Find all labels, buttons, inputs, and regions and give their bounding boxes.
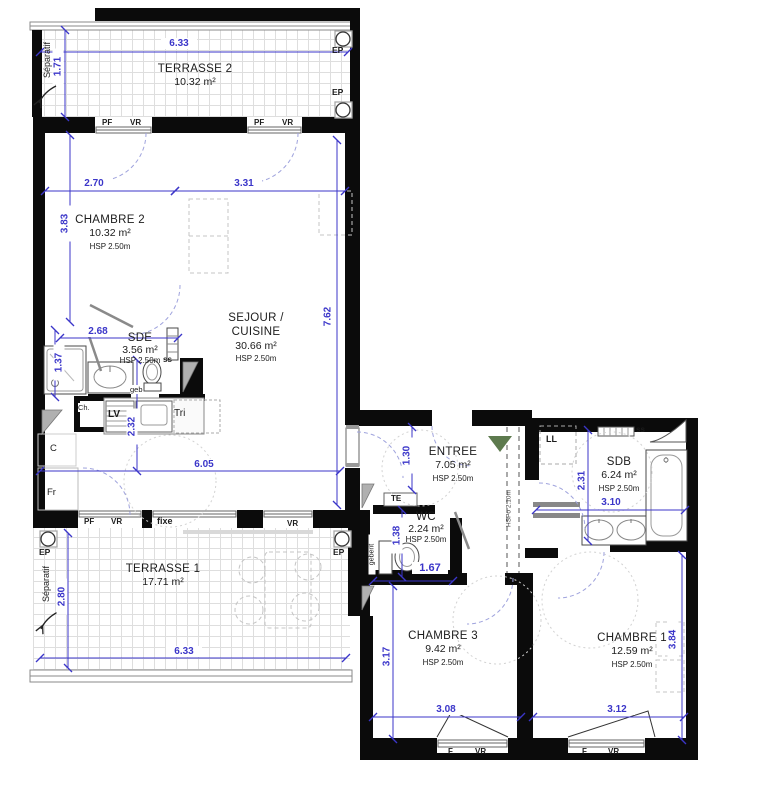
room-area: 10.32 m² (115, 76, 275, 89)
radiator-label-ss: ss (163, 355, 172, 364)
appliance-label-lv: LV (108, 409, 120, 420)
room-hsp: HSP 2.50m (48, 242, 172, 252)
room-area: 9.42 m² (382, 643, 504, 656)
room-name: CHAMBRE 3 (382, 629, 504, 643)
dim-shower-depth: 1.37 (54, 345, 65, 381)
room-name: TERRASSE 2 (115, 62, 275, 76)
room-name: ENTREE (411, 445, 495, 459)
room-hsp: HSP 2.50m (571, 660, 693, 670)
ceiling-height-label-hspo: HSPo 2.10m (506, 486, 513, 532)
dim-sdb-width: 3.10 (593, 497, 629, 508)
room-name: CUISINE (196, 325, 316, 339)
window-label-vr: VR (282, 118, 293, 127)
room-area: 17.71 m² (93, 576, 233, 589)
fridge-label-fr: Fr (47, 487, 56, 498)
room-name: TERRASSE 1 (93, 562, 233, 576)
dim-sde-width: 2.68 (80, 326, 116, 337)
ep-label: EP (333, 547, 344, 557)
dim-terrasse2-depth: 1.71 (53, 49, 64, 85)
window-label-vr: VR (111, 517, 122, 526)
room-label-sdb: SDB 6.24 m² HSP 2.50m (577, 455, 661, 494)
dim-wc-depth: 1.38 (392, 518, 403, 554)
floorplan-geometry (0, 0, 773, 800)
dim-entree-depth: 1.30 (402, 438, 413, 474)
dim-chambre2-depth: 3.83 (60, 206, 71, 242)
radiator-label-ss: ss (636, 425, 645, 434)
room-label-chambre3: CHAMBRE 3 9.42 m² HSP 2.50m (382, 629, 504, 668)
dim-terrasse1-width: 6.33 (166, 646, 202, 657)
bin-label-tri: Tri (174, 408, 185, 419)
closet-label-c: C (50, 443, 57, 454)
dim-sejour-width: 3.31 (226, 178, 262, 189)
dim-terrasse1-depth: 2.80 (57, 579, 68, 615)
window-label-fixe: fixe (157, 516, 173, 526)
window-label-vr: VR (475, 747, 486, 756)
floor-plan: TERRASSE 2 10.32 m² CHAMBRE 2 10.32 m² H… (0, 0, 773, 800)
room-label-terrasse1: TERRASSE 1 17.71 m² (93, 562, 233, 590)
room-area: 7.05 m² (411, 459, 495, 472)
dim-chambre3-width: 3.08 (428, 704, 464, 715)
window-label-f: F (448, 747, 453, 756)
furniture (189, 191, 684, 692)
toilet-label-geberit: geberit (369, 535, 376, 575)
room-hsp: HSP 2.50m (382, 658, 504, 668)
room-area: 30.66 m² (196, 340, 316, 353)
room-hsp: HSP 2.50m (196, 354, 316, 364)
dim-sejour-bottom-width: 6.05 (186, 459, 222, 470)
window-label-f: F (582, 747, 587, 756)
dim-chambre3-depth: 3.17 (382, 639, 393, 675)
dim-wc-width: 1.67 (412, 562, 448, 574)
ep-label: EP (332, 45, 343, 55)
dim-kitchen-depth: 2.32 (127, 409, 138, 445)
room-label-entree: ENTREE 7.05 m² HSP 2.50m (411, 445, 495, 484)
ep-label: EP (332, 87, 343, 97)
dim-sdb-depth: 2.31 (577, 463, 588, 499)
dim-chambre1-width: 3.12 (599, 704, 635, 715)
appliance-label-ll: LL (546, 434, 557, 444)
separatif-label: Séparatif (42, 30, 52, 90)
dim-chambre2-width: 2.70 (76, 178, 112, 189)
toilet-label-geb: geb (130, 385, 143, 394)
room-name: SEJOUR / (196, 311, 316, 325)
window-label-vr: VR (287, 519, 298, 528)
duct-label-te: TE (391, 494, 401, 503)
separatif-label: Séparatif (41, 554, 51, 614)
window-label-vr: VR (130, 118, 141, 127)
window-label-pf: PF (102, 118, 112, 127)
room-label-sejour: SEJOUR / CUISINE 30.66 m² HSP 2.50m (196, 311, 316, 364)
dim-sejour-depth: 7.62 (323, 299, 334, 335)
room-label-terrasse2: TERRASSE 2 10.32 m² (115, 62, 275, 90)
dim-terrasse2-width: 6.33 (161, 38, 197, 49)
room-area: 6.24 m² (577, 469, 661, 482)
boiler-label-ch: Ch. (78, 403, 90, 412)
room-hsp: HSP 2.50m (411, 474, 495, 484)
window-label-pf: PF (84, 517, 94, 526)
window-label-pf: PF (254, 118, 264, 127)
room-hsp: HSP 2.50m (577, 484, 661, 494)
window-label-vr: VR (608, 747, 619, 756)
room-name: SDB (577, 455, 661, 469)
dim-chambre1-depth: 3.84 (668, 622, 679, 658)
